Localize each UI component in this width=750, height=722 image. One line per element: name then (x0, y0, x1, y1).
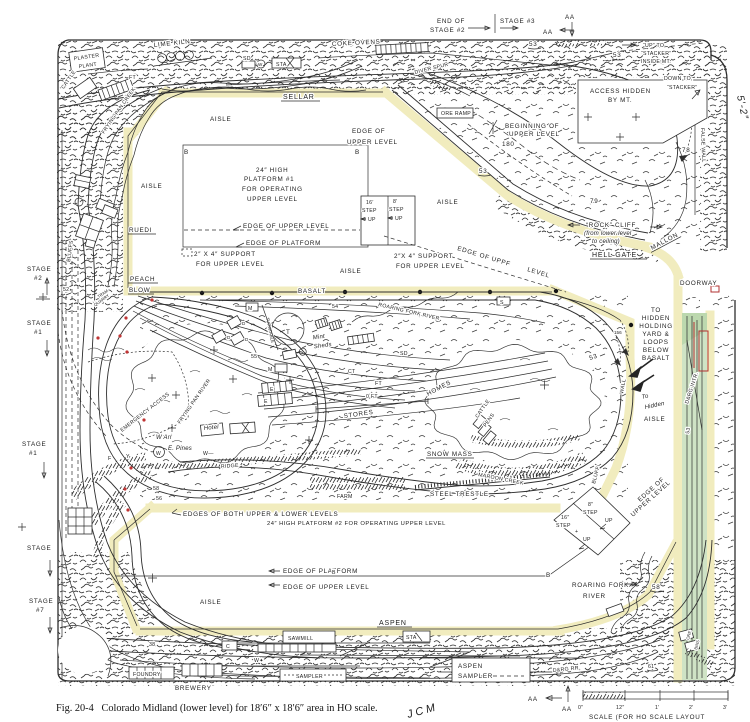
svg-text:AA: AA (543, 29, 553, 36)
svg-text:79: 79 (590, 198, 598, 205)
svg-text:FARM: FARM (337, 494, 353, 500)
svg-text:STEP: STEP (556, 523, 571, 529)
svg-text:SD: SD (243, 56, 251, 62)
svg-text:+: + (575, 529, 578, 535)
svg-text:W Arr: W Arr (156, 435, 173, 441)
svg-text:ORE RAMP: ORE RAMP (441, 111, 471, 117)
svg-text:78: 78 (682, 147, 690, 154)
svg-text:STA: STA (406, 635, 417, 641)
svg-text:UP: UP (583, 537, 591, 543)
svg-text:AISLE: AISLE (437, 199, 458, 206)
svg-text:UP: UP (368, 217, 376, 223)
svg-text:ASPEN: ASPEN (458, 663, 483, 670)
svg-text:SCALE (FOR HO SCALE LAYOUT: SCALE (FOR HO SCALE LAYOUT (589, 714, 705, 721)
svg-text:C: C (226, 644, 230, 650)
svg-text:55: 55 (251, 354, 257, 360)
svg-text:24″ HIGH PLATFORM #2 FOR OPERA: 24″ HIGH PLATFORM #2 FOR OPERATING UPPER… (267, 521, 446, 527)
svg-text:FT: FT (129, 75, 136, 81)
svg-text:“STACKER”: “STACKER” (667, 85, 697, 91)
svg-text:STAGE: STAGE (22, 441, 46, 448)
svg-text:EDGE OF UPPER LEVEL: EDGE OF UPPER LEVEL (243, 223, 329, 230)
svg-text:AISLE: AISLE (340, 268, 361, 275)
svg-text:INSIDE MT.: INSIDE MT. (641, 59, 671, 65)
svg-text:EDGE OF PLATFORM: EDGE OF PLATFORM (283, 568, 358, 575)
svg-text:LOOPS: LOOPS (643, 339, 668, 346)
svg-text:SD: SD (400, 351, 408, 357)
svg-text:12″: 12″ (616, 705, 625, 711)
svg-text:AISLE: AISLE (200, 599, 221, 606)
svg-text:2″ X 4″ SUPPORT: 2″ X 4″ SUPPORT (194, 251, 256, 258)
svg-text:EDGE OF PLATFORM: EDGE OF PLATFORM (246, 240, 321, 247)
svg-text:58: 58 (652, 584, 660, 591)
svg-text:E: E (270, 387, 274, 393)
svg-text:STEP: STEP (362, 208, 377, 214)
svg-text:W: W (156, 451, 161, 457)
svg-text:ROARING FORK: ROARING FORK (572, 582, 629, 589)
svg-text:STAGE: STAGE (27, 266, 51, 273)
svg-text:SAWMILL: SAWMILL (288, 636, 313, 642)
svg-text:UP: UP (395, 216, 403, 222)
svg-text:BLOW: BLOW (129, 287, 150, 294)
svg-text:RIDGE: RIDGE (221, 463, 240, 470)
svg-text:EDGE OF UPPER LEVEL: EDGE OF UPPER LEVEL (283, 584, 369, 591)
svg-text:B: B (355, 149, 360, 156)
svg-text:M: M (268, 367, 273, 373)
svg-text:#1: #1 (34, 329, 42, 336)
svg-text:2′: 2′ (689, 705, 693, 711)
svg-text:PLATFORM #1: PLATFORM #1 (244, 176, 294, 183)
svg-text:53: 53 (479, 168, 487, 175)
svg-text:AISLE: AISLE (210, 116, 231, 123)
svg-text:HIDDEN: HIDDEN (642, 315, 670, 322)
svg-text:DOWN TO,: DOWN TO, (664, 76, 693, 82)
svg-text:BY MT.: BY MT. (608, 97, 632, 104)
svg-text:STEP: STEP (389, 207, 404, 213)
svg-text:RUEDI: RUEDI (129, 227, 152, 234)
svg-text:AA: AA (562, 706, 572, 713)
svg-text:FOR OPERATING: FOR OPERATING (242, 186, 303, 193)
svg-text:58: 58 (153, 486, 159, 492)
svg-text:M: M (248, 306, 253, 312)
svg-text:TO: TO (651, 307, 661, 314)
svg-text:3′: 3′ (723, 705, 727, 711)
svg-text:W: W (258, 62, 263, 67)
svg-text:“UP” TO: “UP” TO (643, 43, 664, 49)
svg-text:BEGINNING OF: BEGINNING OF (505, 123, 559, 130)
svg-text:BASALT: BASALT (642, 355, 670, 362)
svg-text:STA: STA (276, 62, 287, 68)
svg-text:E. Pines: E. Pines (168, 446, 192, 452)
svg-text:BREWERY: BREWERY (175, 685, 212, 692)
svg-text:FOUNDRY: FOUNDRY (133, 672, 161, 678)
svg-text:UPPER LEVEL: UPPER LEVEL (247, 196, 298, 203)
svg-text:DOORWAY: DOORWAY (680, 280, 717, 287)
svg-text:SNOW MASS: SNOW MASS (427, 451, 472, 458)
svg-text:53: 53 (613, 52, 621, 59)
svg-text:ACCESS HIDDEN: ACCESS HIDDEN (590, 88, 651, 95)
svg-text:AISLE: AISLE (644, 416, 665, 423)
svg-text:53: 53 (685, 427, 692, 434)
svg-text:STAGE: STAGE (27, 545, 51, 552)
svg-text:HOLDING: HOLDING (639, 323, 673, 330)
svg-text:16′: 16′ (366, 200, 374, 206)
svg-text:AA: AA (528, 696, 538, 703)
svg-text:“ROCK” CLIFF: “ROCK” CLIFF (586, 222, 636, 229)
svg-text:0″: 0″ (578, 705, 583, 711)
svg-text:W—: W— (203, 451, 214, 457)
svg-text:61: 61 (648, 664, 654, 670)
svg-text:EDGES OF BOTH UPPER & LOWER LE: EDGES OF BOTH UPPER & LOWER LEVELS (183, 511, 338, 518)
svg-text:8″: 8″ (588, 502, 593, 508)
svg-text:W✦: W✦ (254, 658, 264, 664)
svg-text:0 FT: 0 FT (366, 394, 378, 400)
svg-text:STEEL TRESTLE: STEEL TRESTLE (430, 491, 489, 498)
svg-text:B: B (332, 570, 336, 576)
svg-text:SAMPLER: SAMPLER (296, 674, 323, 680)
svg-text:8′: 8′ (393, 199, 397, 205)
svg-text:FALSE WALL: FALSE WALL (699, 128, 706, 163)
svg-text:2″X 4″ SUPPORT: 2″X 4″ SUPPORT (394, 253, 453, 260)
svg-text:UPPER LEVEL: UPPER LEVEL (347, 139, 398, 146)
svg-text:(from lower level: (from lower level (584, 231, 632, 237)
svg-text:S: S (500, 300, 504, 306)
svg-text:EDGE OF: EDGE OF (352, 128, 385, 135)
svg-text:Y: Y (126, 454, 130, 460)
svg-text:STAGE #3: STAGE #3 (500, 18, 535, 25)
svg-text:#1: #1 (29, 450, 37, 457)
svg-text:16″: 16″ (561, 515, 570, 521)
svg-text:#7: #7 (36, 607, 44, 614)
svg-text:STAGE #2: STAGE #2 (430, 27, 465, 34)
svg-text:SAMPLER: SAMPLER (458, 673, 493, 680)
svg-text:STEP: STEP (583, 510, 598, 516)
svg-text:STAGE: STAGE (29, 598, 53, 605)
svg-text:STAGE: STAGE (27, 320, 51, 327)
svg-text:54: 54 (332, 304, 338, 310)
svg-text:E: E (264, 399, 268, 405)
svg-text:PEACH: PEACH (130, 276, 155, 283)
svg-text:T: T (286, 329, 291, 336)
svg-text:BASALT: BASALT (298, 288, 326, 295)
svg-text:CT: CT (348, 369, 356, 375)
svg-text:to ceiling): to ceiling) (592, 239, 620, 245)
svg-text:F: F (108, 456, 111, 462)
svg-text:AA: AA (565, 14, 575, 21)
svg-text:UPPER LEVEL: UPPER LEVEL (509, 131, 560, 138)
svg-text:RIVER: RIVER (583, 593, 606, 600)
svg-text:Fig. 20-4 Colorado Midland (: Fig. 20-4 Colorado Midland (lower level)… (56, 703, 378, 714)
svg-text:ASPEN: ASPEN (379, 620, 407, 627)
svg-text:38: 38 (149, 642, 155, 648)
svg-text:B: B (546, 572, 551, 579)
svg-text:53: 53 (529, 41, 537, 48)
svg-text:#2: #2 (34, 275, 42, 282)
svg-text:24″ HIGH: 24″ HIGH (256, 167, 288, 174)
svg-text:1′: 1′ (655, 705, 659, 711)
svg-text:“STACKER”: “STACKER” (641, 51, 671, 57)
svg-text:END OF: END OF (437, 18, 465, 25)
svg-text:BELOW: BELOW (643, 347, 669, 354)
svg-text:YARD &: YARD & (642, 331, 669, 338)
svg-text:156: 156 (614, 330, 622, 335)
svg-text:HELL GATE: HELL GATE (592, 252, 637, 259)
svg-text:FOR UPPER LEVEL: FOR UPPER LEVEL (196, 261, 265, 268)
svg-text:180: 180 (502, 141, 515, 148)
svg-text:SELLAR: SELLAR (283, 94, 315, 101)
svg-text:FT: FT (375, 381, 382, 387)
svg-text:B: B (184, 149, 189, 156)
svg-text:56: 56 (156, 496, 162, 502)
svg-text:UP: UP (605, 518, 613, 524)
svg-text:FOR UPPER LEVEL: FOR UPPER LEVEL (396, 263, 465, 270)
svg-text:52: 52 (63, 287, 69, 293)
svg-text:AISLE: AISLE (141, 183, 162, 190)
